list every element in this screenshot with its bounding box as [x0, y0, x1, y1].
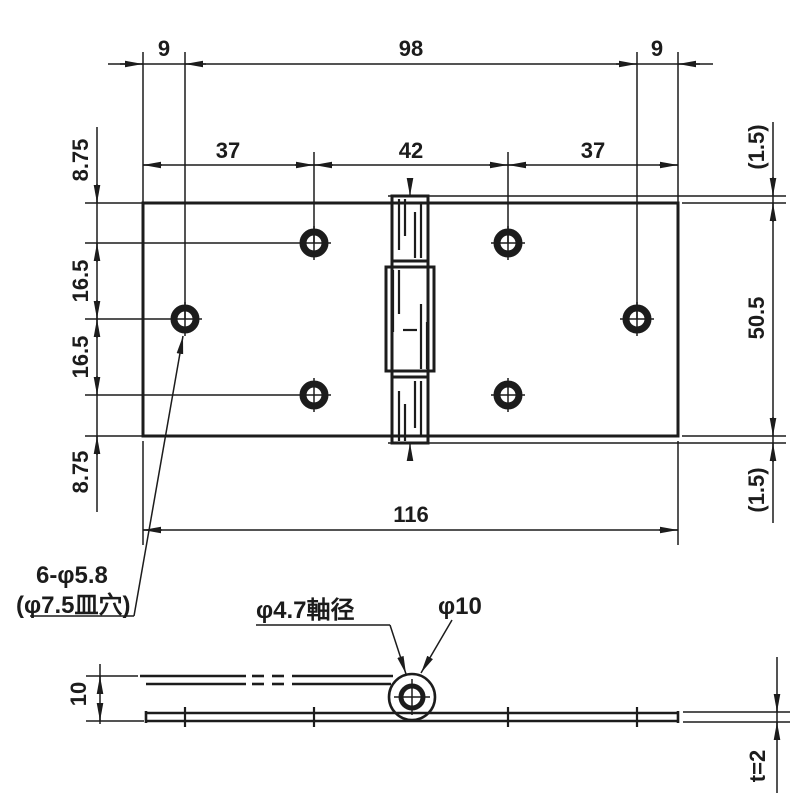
dim-right-middle-label: 50.5: [744, 297, 769, 340]
hinge-plate: [143, 203, 678, 436]
screw-hole-6: [620, 302, 654, 336]
drawing-canvas: 9 98 9 37 42 37 8.75 16.5 16.5 8.75 (1.5…: [0, 0, 800, 800]
upper-leaf: [140, 676, 393, 684]
dim-top-center-label: 98: [399, 36, 423, 61]
hole-note-line2: (φ7.5皿穴): [16, 591, 131, 619]
knuckle-note-leader: [421, 620, 452, 673]
dim-overall-width-label: 116: [393, 502, 429, 527]
hole-note-line1: 6-φ5.8: [36, 562, 108, 589]
height-dimension: [86, 664, 144, 724]
dim-row2-center-label: 42: [399, 138, 423, 163]
screw-holes: [168, 226, 654, 412]
barrel-and-pin: [389, 674, 435, 720]
dim-right-bottom-label: (1.5): [744, 467, 769, 512]
screw-hole-1: [168, 302, 202, 336]
dim-row2-right-label: 37: [581, 138, 605, 163]
screw-hole-2: [297, 226, 331, 260]
dim-top-left-label: 9: [158, 36, 170, 61]
dim-left-upper-label: 16.5: [68, 260, 93, 303]
knuckle-diameter-label: φ10: [438, 593, 482, 620]
screw-hole-3: [297, 378, 331, 412]
knuckle-break-stripes: [393, 199, 427, 441]
plan-view: 9 98 9 37 42 37 8.75 16.5 16.5 8.75 (1.5…: [16, 36, 786, 619]
dim-left-top-label: 8.75: [68, 139, 93, 182]
knuckle: [386, 182, 434, 457]
thickness-dimension: [683, 657, 790, 793]
dim-left-lower-label: 16.5: [68, 336, 93, 379]
side-view: φ4.7軸径 φ10 10 t=2: [66, 593, 790, 793]
pin-diameter-label: φ4.7軸径: [256, 597, 355, 624]
dim-row2-left-label: 37: [216, 138, 240, 163]
dim-left-bottom-label: 8.75: [68, 451, 93, 494]
dim-top-right-label: 9: [651, 36, 663, 61]
pin-note-leader: [256, 625, 406, 674]
screw-hole-5: [491, 378, 525, 412]
thickness-label: t=2: [745, 750, 770, 782]
height-dim-label: 10: [66, 682, 91, 706]
dim-right-top-label: (1.5): [744, 124, 769, 169]
screw-hole-4: [491, 226, 525, 260]
hinge-dimension-drawing: 9 98 9 37 42 37 8.75 16.5 16.5 8.75 (1.5…: [0, 0, 800, 800]
